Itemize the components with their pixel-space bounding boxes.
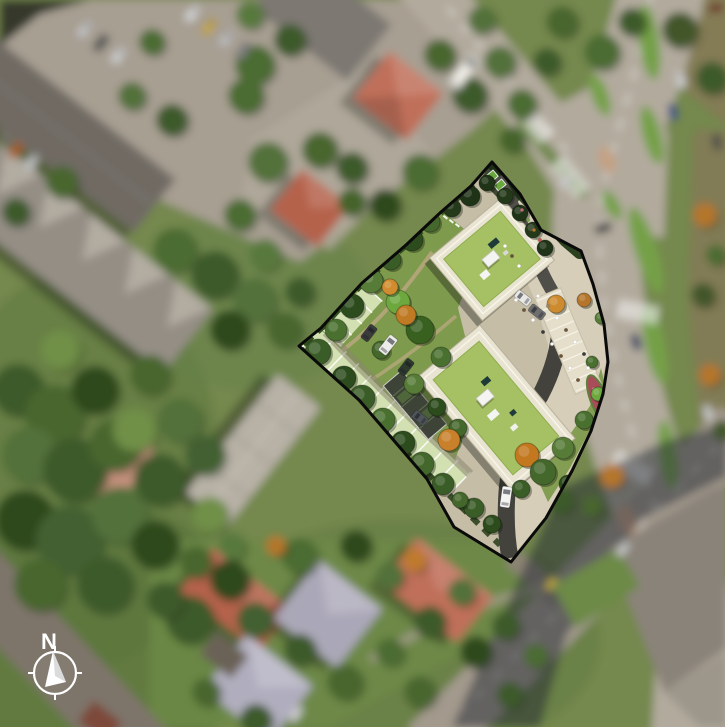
site-plan-svg: N: [0, 0, 725, 727]
aerial-site-rendering: N: [0, 0, 725, 727]
